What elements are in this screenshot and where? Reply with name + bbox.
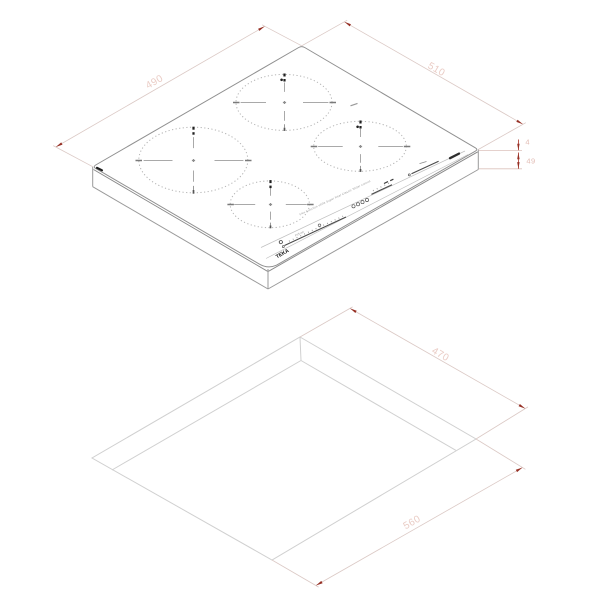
svg-text:4: 4: [525, 138, 529, 147]
svg-text:49: 49: [526, 157, 535, 166]
